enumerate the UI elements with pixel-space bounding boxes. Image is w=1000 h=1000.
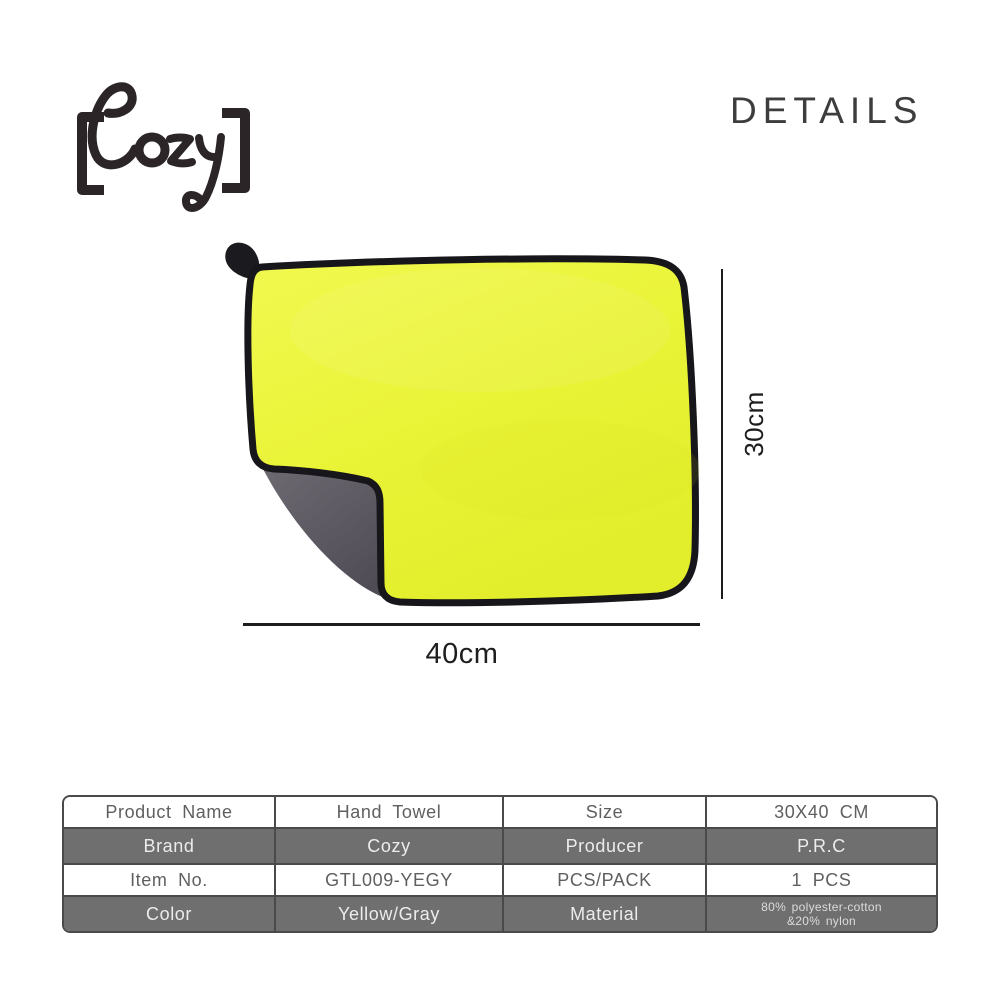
table-row: Color Yellow/Gray Material 80% polyester… xyxy=(64,895,936,931)
color-label: Color xyxy=(64,897,274,931)
towel-sheen xyxy=(290,268,670,392)
letter-c-glyph xyxy=(92,87,135,165)
color-value: Yellow/Gray xyxy=(274,897,502,931)
producer-value: P.R.C xyxy=(705,829,936,863)
size-label: Size xyxy=(502,797,705,827)
table-row: Brand Cozy Producer P.R.C xyxy=(64,827,936,863)
width-dimension-line xyxy=(243,623,700,626)
table-row: Product Name Hand Towel Size 30X40 CM xyxy=(64,797,936,827)
letter-z-glyph xyxy=(170,138,192,164)
table-row: Item No. GTL009-YEGY PCS/PACK 1 PCS xyxy=(64,863,936,895)
material-value-line2: &20% nylon xyxy=(787,914,856,928)
height-dimension-line xyxy=(721,269,723,599)
letter-o-glyph xyxy=(139,137,165,163)
size-value: 30X40 CM xyxy=(705,797,936,827)
right-bracket-glyph xyxy=(222,113,245,188)
pcs-pack-label: PCS/PACK xyxy=(502,865,705,895)
towel-sheen xyxy=(420,420,700,520)
producer-label: Producer xyxy=(502,829,705,863)
brand-value: Cozy xyxy=(274,829,502,863)
brand-label: Brand xyxy=(64,829,274,863)
item-no-label: Item No. xyxy=(64,865,274,895)
width-dimension-label: 40cm xyxy=(392,638,532,671)
product-name-value: Hand Towel xyxy=(274,797,502,827)
material-value-line1: 80% polyester-cotton xyxy=(761,900,882,914)
cozy-logo xyxy=(68,80,258,225)
spec-table: Product Name Hand Towel Size 30X40 CM Br… xyxy=(62,795,938,933)
material-label: Material xyxy=(502,897,705,931)
height-dimension-label: 30cm xyxy=(740,384,768,464)
product-name-label: Product Name xyxy=(64,797,274,827)
towel-image xyxy=(205,230,725,625)
details-title: DETAILS xyxy=(730,90,923,132)
product-detail-page: DETAILS 30cm 40cm Product Name xyxy=(0,0,1000,1000)
letter-y-glyph xyxy=(186,137,221,208)
material-value: 80% polyester-cotton &20% nylon xyxy=(705,897,936,931)
item-no-value: GTL009-YEGY xyxy=(274,865,502,895)
pcs-pack-value: 1 PCS xyxy=(705,865,936,895)
